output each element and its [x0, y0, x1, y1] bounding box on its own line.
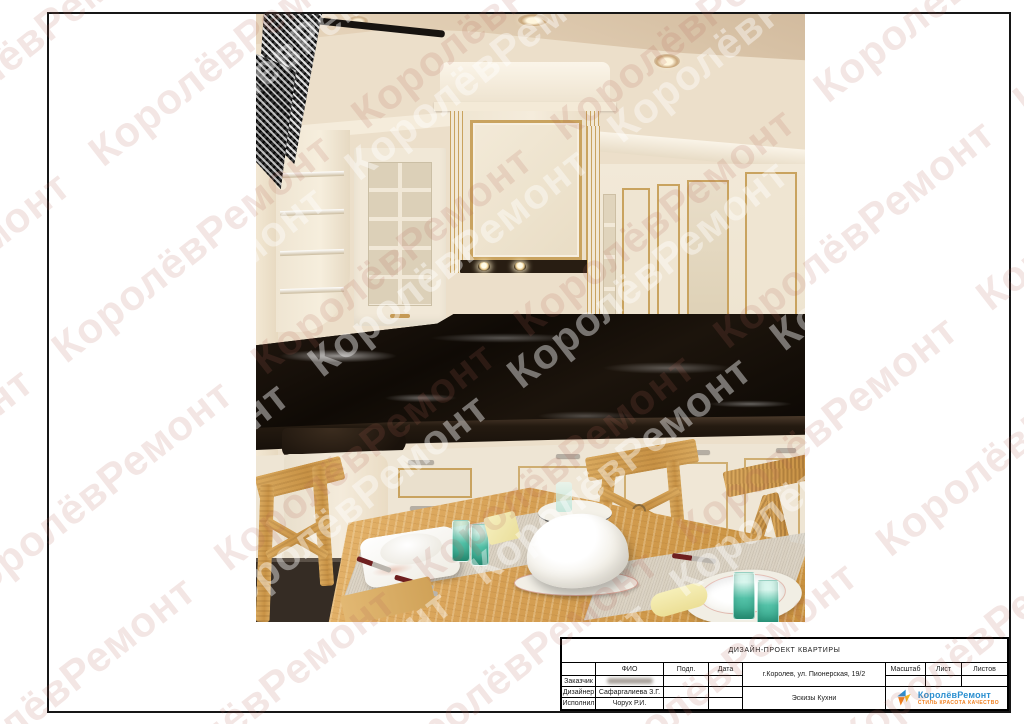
- scale-value: [886, 676, 926, 687]
- clear-glass: [556, 482, 572, 512]
- cabinet-door: [657, 184, 680, 320]
- fluted-pilaster: [450, 111, 463, 273]
- logo-text: КоролёвРемонт: [918, 691, 999, 700]
- drawer-handle: [776, 448, 796, 452]
- designer-name: Сафаргалиева З.Г.: [596, 687, 664, 698]
- hood-light: [514, 262, 526, 271]
- role-label-designer: Дизайнер: [562, 687, 596, 698]
- role-label-client: Заказчик: [562, 676, 596, 687]
- signature-cell: [664, 676, 709, 687]
- teal-glass: [757, 580, 779, 622]
- ceiling-spotlight: [654, 54, 680, 68]
- drawer-handle: [556, 454, 580, 458]
- col-header-sheet: Лист: [926, 663, 962, 676]
- col-header-date: Дата: [709, 663, 743, 676]
- signature-cell: [664, 698, 709, 709]
- cabinet-door: [622, 188, 650, 320]
- col-header-sheets: Листов: [962, 663, 1007, 676]
- date-cell: [709, 687, 743, 698]
- drawer-front: [398, 468, 472, 498]
- col-header-scale: Масштаб: [886, 663, 926, 676]
- backsplash-marble: [256, 314, 805, 434]
- hood-light: [478, 262, 490, 271]
- col-header-signature: Подп.: [664, 663, 709, 676]
- glass-door-panes: [368, 162, 432, 306]
- role-label-drafter: Исполнил: [562, 698, 596, 709]
- curved-open-shelf-unit: [276, 130, 350, 332]
- range-hood-cornice: [440, 62, 610, 104]
- range-hood-lip: [434, 102, 616, 111]
- sheets-value: [962, 676, 1007, 687]
- drawer-handle: [408, 460, 434, 464]
- col-header-name: ФИО: [596, 663, 664, 676]
- corner-glass-cabinet: [603, 194, 616, 320]
- project-address: г.Королев, ул. Пионерская, 19/2: [743, 663, 886, 687]
- signature-cell: [664, 687, 709, 698]
- sheet-subject: Эскизы Кухни: [743, 687, 886, 709]
- title-block: ДИЗАЙН-ПРОЕКТ КВАРТИРЫ ФИО Подп. Дата г.…: [560, 637, 1009, 711]
- cabinet-handle: [390, 314, 410, 318]
- client-name-redacted: [596, 676, 664, 687]
- project-title: ДИЗАЙН-ПРОЕКТ КВАРТИРЫ: [562, 639, 1007, 663]
- range-hood-panel: [470, 120, 582, 260]
- kitchen-photo: КоролёвРемонт КоролёвРемонт КоролёвРемон…: [256, 14, 805, 622]
- cabinet-door: [687, 180, 729, 322]
- cabinet-door: [745, 172, 797, 324]
- corner-pilaster: [587, 126, 600, 322]
- logo-icon: [894, 688, 914, 708]
- teal-glass: [452, 520, 470, 562]
- corner-cell: [562, 663, 596, 676]
- sheet-value: [926, 676, 962, 687]
- drafter-name: Чорух Р.И.: [596, 698, 664, 709]
- design-sheet: { "watermark": { "text": "КоролёвРемонт"…: [0, 0, 1024, 724]
- ceiling-spotlight: [518, 14, 548, 26]
- date-cell: [709, 698, 743, 709]
- teal-glass: [733, 572, 755, 620]
- logo-tagline: СТИЛЬ КРАСОТА КАЧЕСТВО: [918, 701, 999, 706]
- date-cell: [709, 676, 743, 687]
- company-logo: КоролёвРемонт СТИЛЬ КРАСОТА КАЧЕСТВО: [886, 687, 1007, 709]
